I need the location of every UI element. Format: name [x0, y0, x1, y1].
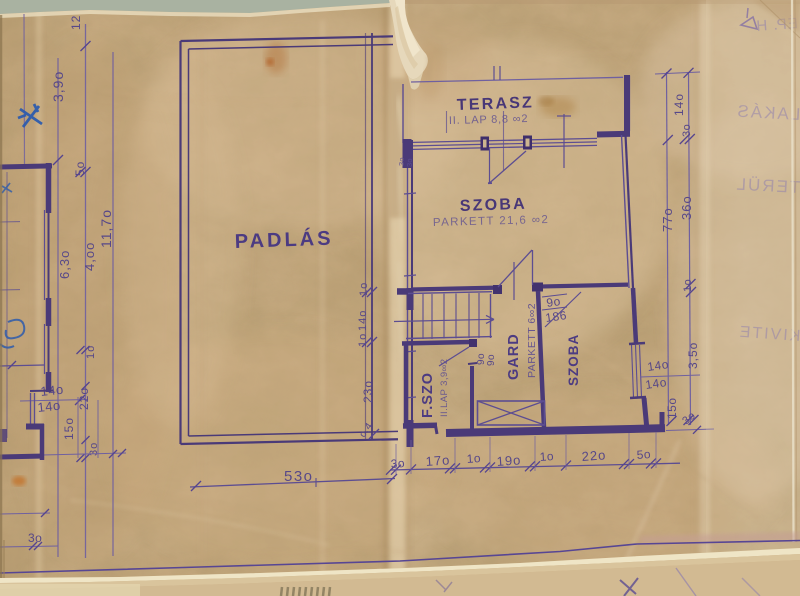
svg-text:1o: 1o — [682, 279, 694, 292]
svg-text:15o: 15o — [62, 417, 76, 440]
svg-text:14o: 14o — [646, 357, 669, 374]
svg-text:3,9o: 3,9o — [50, 71, 66, 102]
svg-text:3o: 3o — [390, 456, 405, 471]
svg-text:9o: 9o — [486, 354, 497, 366]
svg-text:1o: 1o — [466, 451, 481, 466]
svg-text:SZOBA: SZOBA — [460, 196, 528, 215]
svg-text:22o: 22o — [77, 387, 91, 410]
svg-text:PARKETT 6∞2: PARKETT 6∞2 — [526, 303, 538, 378]
svg-text:TERASZ: TERASZ — [457, 94, 535, 114]
svg-text:3o: 3o — [681, 124, 693, 137]
svg-text:GARD: GARD — [506, 333, 522, 380]
svg-text:11,7o: 11,7o — [98, 209, 114, 248]
svg-text:3,5o: 3,5o — [686, 342, 700, 369]
svg-text:F.SZO: F.SZO — [420, 372, 436, 418]
svg-text:SZOBA: SZOBA — [566, 334, 581, 386]
svg-text:6,3o: 6,3o — [57, 250, 72, 279]
svg-text:12: 12 — [69, 15, 83, 30]
svg-text:36o: 36o — [679, 195, 694, 220]
svg-text:53o: 53o — [284, 468, 314, 485]
svg-text:1o: 1o — [539, 449, 554, 464]
svg-text:3o: 3o — [405, 158, 414, 167]
svg-text:17o: 17o — [425, 452, 451, 469]
svg-text:5o: 5o — [636, 447, 651, 462]
svg-text:1o: 1o — [357, 333, 369, 347]
svg-text:PADLÁS: PADLÁS — [234, 227, 333, 253]
svg-text:4,oo: 4,oo — [82, 242, 97, 271]
svg-text:15o: 15o — [665, 397, 679, 419]
svg-text:77o: 77o — [660, 207, 675, 232]
svg-text:19o: 19o — [496, 452, 522, 469]
svg-text:22o: 22o — [581, 447, 607, 464]
svg-text:1o: 1o — [358, 282, 370, 296]
svg-text:14o: 14o — [357, 310, 369, 331]
svg-text:1o: 1o — [85, 345, 97, 359]
svg-text:II. LAP 8,8 ∞2: II. LAP 8,8 ∞2 — [449, 113, 529, 127]
svg-text:23o: 23o — [361, 380, 375, 403]
svg-text:14o: 14o — [672, 93, 686, 116]
svg-text:14o: 14o — [644, 375, 667, 392]
svg-text:II.LAP 3,9∞2: II.LAP 3,9∞2 — [439, 359, 450, 417]
